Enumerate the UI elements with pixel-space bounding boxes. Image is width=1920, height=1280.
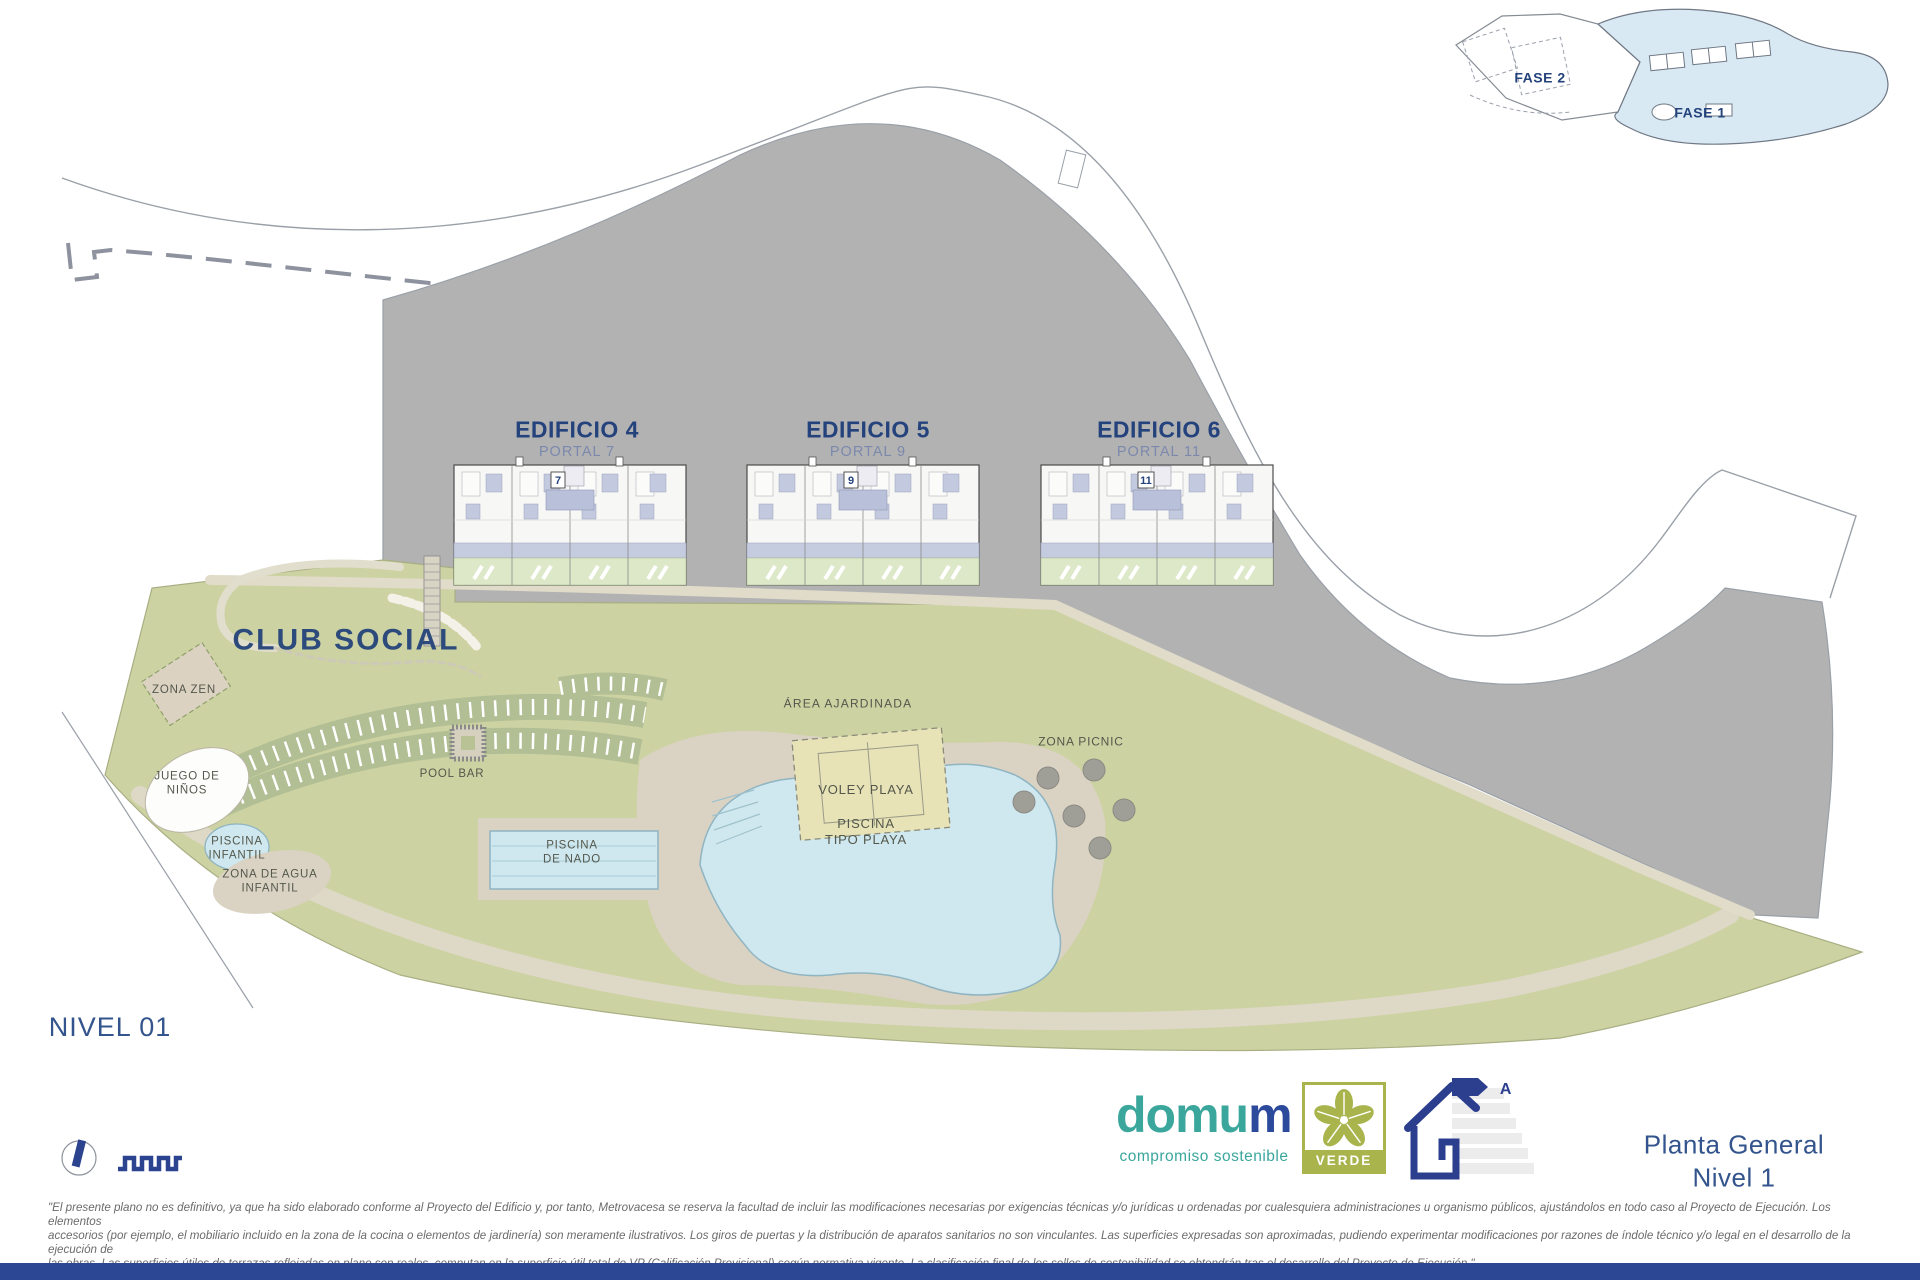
- label-edificio-5: EDIFICIO 5: [806, 416, 930, 445]
- label-pool-bar: POOL BAR: [420, 767, 485, 781]
- disclaimer-line-1: "El presente plano no es definitivo, ya …: [48, 1201, 1882, 1229]
- label-piscina-tipo-playa: PISCINA TIPO PLAYA: [825, 816, 907, 849]
- label-voley-playa: VOLEY PLAYA: [818, 782, 914, 798]
- verde-badge-label: VERDE: [1305, 1150, 1383, 1171]
- pool-bar-structure: [452, 727, 484, 759]
- portal-number-11: 11: [1140, 475, 1152, 487]
- energy-rating-icon: [1408, 1078, 1534, 1176]
- brand-tagline: compromiso sostenible: [1118, 1148, 1290, 1166]
- label-portal-7: PORTAL 7: [539, 443, 615, 461]
- road-notch: [1058, 150, 1086, 188]
- energy-letter: A: [1500, 1080, 1512, 1100]
- brand-accent-text: m: [1248, 1087, 1291, 1143]
- disclaimer-line-2: accesorios (por ejemplo, el mobiliario i…: [48, 1229, 1882, 1257]
- label-piscina-infantil: PISCINA INFANTIL: [209, 835, 266, 864]
- portal-number-9: 9: [848, 475, 854, 487]
- verde-badge: VERDE: [1302, 1082, 1386, 1174]
- label-zona-agua-infantil: ZONA DE AGUA INFANTIL: [222, 868, 317, 897]
- north-compass-icon: [62, 1139, 96, 1175]
- scale-bar-icon: [118, 1158, 182, 1169]
- domum-logo: domum: [1116, 1090, 1292, 1140]
- sheet-title: Planta General Nivel 1: [1641, 1129, 1827, 1194]
- fase1-area: [1598, 9, 1888, 144]
- label-fase-2: FASE 2: [1514, 69, 1565, 87]
- footer-bar: [0, 1263, 1920, 1280]
- label-edificio-4: EDIFICIO 4: [515, 416, 639, 445]
- disclaimer-text: "El presente plano no es definitivo, ya …: [48, 1201, 1882, 1271]
- building-edificio-5: [747, 457, 979, 585]
- label-portal-11: PORTAL 11: [1117, 443, 1201, 461]
- label-zona-picnic: ZONA PICNIC: [1038, 735, 1123, 750]
- label-edificio-6: EDIFICIO 6: [1097, 416, 1221, 445]
- label-juego-de-ninos: JUEGO DE NIÑOS: [154, 770, 219, 799]
- label-zona-zen: ZONA ZEN: [152, 683, 216, 697]
- site-plan-sheet: 7 9 11: [0, 0, 1920, 1280]
- label-fase-1: FASE 1: [1674, 104, 1725, 122]
- building-edificio-4: [454, 457, 686, 585]
- label-area-ajardinada: ÁREA AJARDINADA: [784, 697, 913, 712]
- portal-number-7: 7: [555, 475, 561, 487]
- building-edificio-6: [1041, 457, 1273, 585]
- leaf-flower-icon: [1305, 1085, 1383, 1151]
- level-label: NIVEL 01: [49, 1011, 172, 1045]
- label-club-social: CLUB SOCIAL: [233, 621, 460, 659]
- label-portal-9: PORTAL 9: [830, 443, 906, 461]
- brand-primary-text: domu: [1116, 1087, 1248, 1143]
- label-piscina-de-nado: PISCINA DE NADO: [543, 839, 601, 868]
